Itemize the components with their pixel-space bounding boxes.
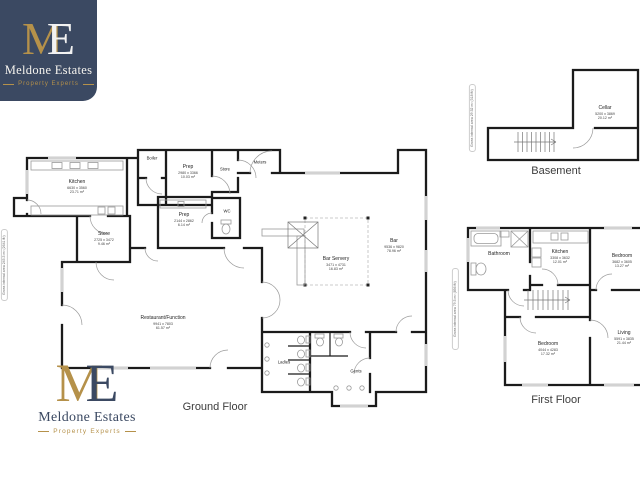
- room-label-gf-kitchen: Kitchen 6630 x 3560 23.71 m²: [67, 179, 87, 195]
- gross-area-note-basement: Gross internal area 29.52 m² (318 ft²): [469, 84, 476, 152]
- brand-name: Meldone Estates: [5, 63, 92, 78]
- room-label-gf-restaurant: Restaurant/Function 9941 x 7803 61.57 m²: [140, 315, 185, 331]
- brand-tagline: Property Experts: [53, 428, 121, 435]
- brand-monogram: ME: [22, 16, 75, 62]
- floorplan-page: Kitchen 6630 x 3560 23.71 m² Boiler Prep…: [0, 0, 640, 480]
- tagline-dash-left: [3, 84, 14, 85]
- ground-floor-title: Ground Floor: [183, 401, 248, 413]
- room-label-gf-bar: Bar 9536 x 9820 78.96 m²: [384, 238, 404, 254]
- tagline-dash-left: [38, 431, 49, 432]
- brand-monogram: ME: [55, 356, 118, 410]
- room-label-gf-prep-top: Prep 2980 x 3366 10.03 m²: [178, 164, 198, 180]
- survey-dashed-rect: [304, 217, 370, 287]
- room-label-ff-kitchen: Kitchen 3308 x 3632 12.01 m²: [550, 249, 570, 265]
- brand-logo-top: ME Meldone Estates Property Experts: [0, 0, 97, 101]
- room-label-ff-living: Living 5591 x 3835 21.44 m²: [614, 330, 634, 346]
- door-arcs: [27, 128, 612, 374]
- room-label-gf-boiler: Boiler: [147, 155, 158, 160]
- room-label-gf-meters: Meters: [254, 159, 267, 164]
- room-label-gf-prep-mid: Prep 2144 x 2862 6.14 m²: [174, 212, 194, 228]
- room-label-gf-bar-servery: Bar Servery 3471 x 4731 16.83 m²: [323, 256, 349, 272]
- gross-area-note-ground: Gross internal area 245.3 m² (2641 ft²): [1, 229, 8, 301]
- tagline-dash-right: [83, 84, 94, 85]
- room-label-gf-ladies: Ladies: [278, 359, 290, 364]
- room-label-gf-gents: Gents: [350, 368, 361, 373]
- tagline-dash-right: [125, 431, 136, 432]
- first-floor-title: First Floor: [531, 394, 581, 406]
- room-label-basement-cellar: Cellar 5200 x 3869 20.12 m²: [595, 105, 615, 121]
- room-label-ff-bedroom-1: Bedroom 3682 x 3605 13.27 m²: [612, 253, 632, 269]
- brand-logo-bottom: ME Meldone Estates Property Experts: [22, 356, 152, 435]
- room-label-ff-bathroom: Bathroom: [488, 251, 510, 258]
- basement-walls: [488, 70, 638, 160]
- room-label-gf-wc: WC: [224, 208, 231, 213]
- basement-title: Basement: [531, 165, 581, 177]
- monogram-e-letter: E: [86, 353, 119, 413]
- gross-area-note-first: Gross internal area 79.5 m² (856 ft²): [452, 268, 459, 350]
- room-label-gf-store-mid: Store 2725 x 3472 9.46 m²: [94, 231, 114, 247]
- brand-tagline: Property Experts: [18, 81, 79, 87]
- brand-name: Meldone Estates: [38, 410, 135, 426]
- brand-tagline-row: Property Experts: [3, 81, 94, 87]
- monogram-e-letter: E: [47, 13, 75, 64]
- room-label-ff-bedroom-2: Bedroom 4044 x 4283 17.32 m²: [538, 341, 558, 357]
- brand-tagline-row: Property Experts: [38, 428, 136, 435]
- room-label-gf-store-top: Store: [220, 166, 230, 171]
- stairs-icons: [288, 132, 570, 310]
